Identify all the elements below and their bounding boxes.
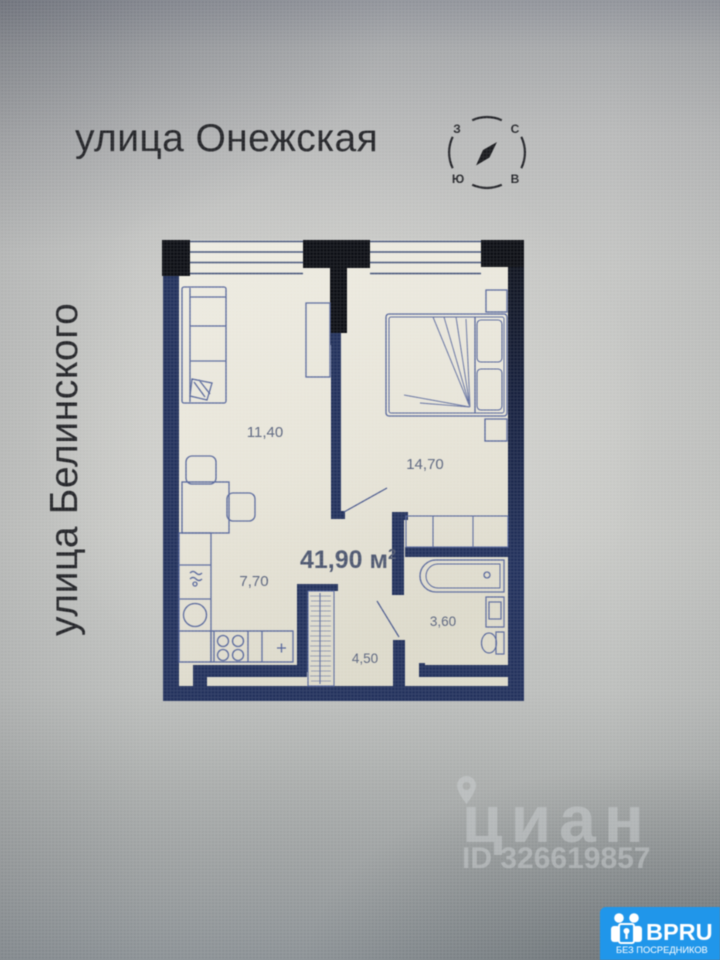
svg-text:БЕЗ ПОСРЕДНИКОВ: БЕЗ ПОСРЕДНИКОВ — [616, 945, 708, 955]
svg-text:BPRU: BPRU — [646, 919, 713, 945]
